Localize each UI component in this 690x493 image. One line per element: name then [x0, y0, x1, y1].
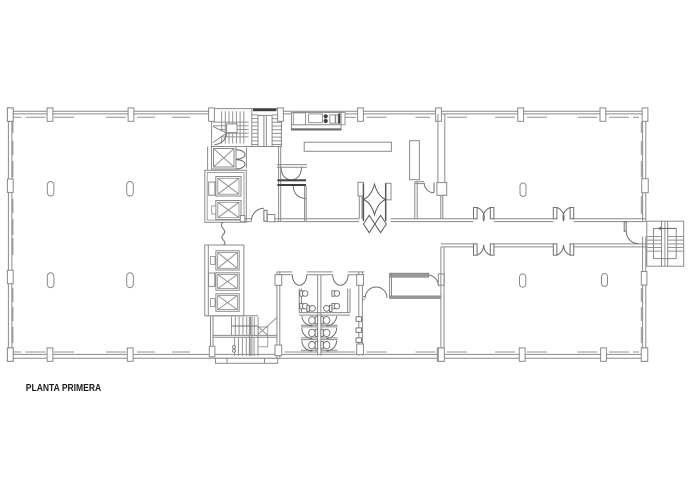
svg-text:PLANTA PRIMERA: PLANTA PRIMERA [26, 383, 102, 394]
